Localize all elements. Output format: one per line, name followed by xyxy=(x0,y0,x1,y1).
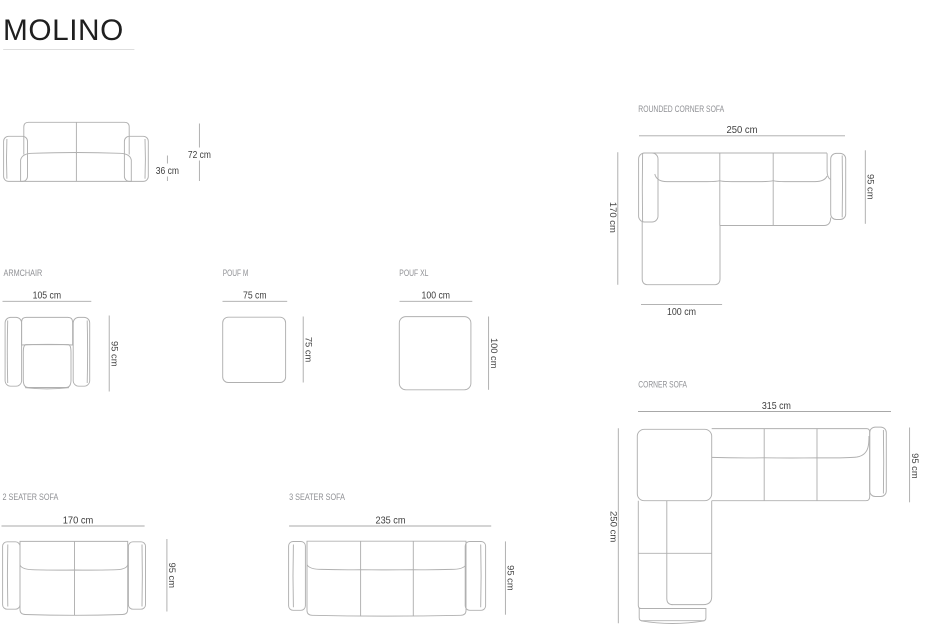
svg-text:170 cm: 170 cm xyxy=(608,202,618,233)
svg-text:CORNER SOFA: CORNER SOFA xyxy=(638,380,687,390)
svg-text:315 cm: 315 cm xyxy=(762,401,791,412)
svg-text:MOLINO: MOLINO xyxy=(3,14,124,47)
svg-text:POUF XL: POUF XL xyxy=(399,268,428,278)
svg-text:36 cm: 36 cm xyxy=(156,166,179,177)
svg-text:95 cm: 95 cm xyxy=(910,453,920,479)
svg-text:72 cm: 72 cm xyxy=(188,150,211,161)
svg-text:95 cm: 95 cm xyxy=(866,174,876,200)
svg-text:95 cm: 95 cm xyxy=(506,565,516,591)
svg-text:95 cm: 95 cm xyxy=(109,341,119,367)
svg-text:235 cm: 235 cm xyxy=(376,515,406,526)
svg-text:100 cm: 100 cm xyxy=(489,338,499,369)
svg-text:POUF M: POUF M xyxy=(223,268,249,278)
svg-text:75 cm: 75 cm xyxy=(243,291,267,302)
svg-text:95 cm: 95 cm xyxy=(167,563,177,589)
svg-text:75 cm: 75 cm xyxy=(303,337,313,363)
svg-text:100 cm: 100 cm xyxy=(422,291,451,302)
svg-text:250 cm: 250 cm xyxy=(727,125,758,136)
svg-text:3 SEATER SOFA: 3 SEATER SOFA xyxy=(289,492,345,502)
svg-text:ROUNDED CORNER SOFA: ROUNDED CORNER SOFA xyxy=(638,104,724,114)
svg-text:170 cm: 170 cm xyxy=(63,515,94,526)
svg-text:105 cm: 105 cm xyxy=(33,291,62,302)
svg-text:2 SEATER SOFA: 2 SEATER SOFA xyxy=(3,492,59,502)
svg-text:250 cm: 250 cm xyxy=(608,511,618,543)
svg-text:ARMCHAIR: ARMCHAIR xyxy=(4,268,43,278)
svg-text:100 cm: 100 cm xyxy=(667,307,696,318)
